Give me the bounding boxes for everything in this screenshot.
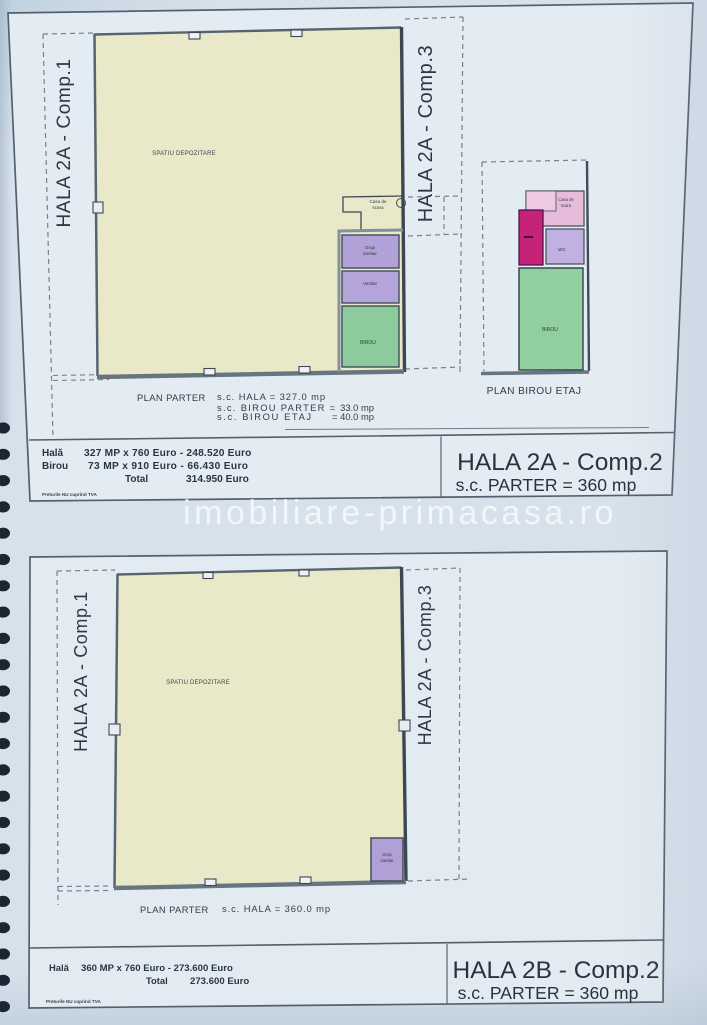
svg-text:73 MP x 910 Euro - 66.430 Eur: 73 MP x 910 Euro - 66.430 Euro [88,461,248,472]
svg-text:314.950 Euro: 314.950 Euro [186,474,249,485]
svg-text:273.600 Euro: 273.600 Euro [190,976,249,987]
svg-text:Birou: Birou [42,461,68,472]
svg-text:HALA 2A - Comp.1: HALA 2A - Comp.1 [71,591,91,752]
svg-text:327 MP x 760 Euro - 248.520 Eu: 327 MP x 760 Euro - 248.520 Euro [84,448,252,459]
svg-text:Total: Total [125,474,148,485]
svg-text:360 MP x 760 Euro - 273.600 Eu: 360 MP x 760 Euro - 273.600 Euro [81,963,233,974]
svg-text:Hală: Hală [42,448,64,459]
svg-text:SPATIU DEPOZITARE: SPATIU DEPOZITARE [166,680,230,686]
svg-text:=: = [332,411,338,422]
svg-text:PLAN PARTER: PLAN PARTER [140,904,209,915]
svg-text:s.c. HALA = 360.0 mp: s.c. HALA = 360.0 mp [222,903,331,914]
svg-text:PLAN PARTER: PLAN PARTER [137,392,206,403]
svg-text:s.c. BIROU ETAJ: s.c. BIROU ETAJ [217,411,313,422]
svg-text:Total: Total [146,975,168,986]
svg-text:Hală: Hală [49,962,70,973]
svg-text:imobiliare-primacasa.ro: imobiliare-primacasa.ro [183,494,617,532]
svg-text:HALA 2A - Comp.1: HALA 2A - Comp.1 [54,58,75,227]
svg-text:Preturile NU cuprind TVA: Preturile NU cuprind TVA [46,999,101,1004]
svg-text:s.c. HALA = 327.0 mp: s.c. HALA = 327.0 mp [217,391,326,402]
svg-text:SPATIU DEPOZITARE: SPATIU DEPOZITARE [152,151,216,157]
svg-text:Preturile NU cuprind TVA: Preturile NU cuprind TVA [42,492,97,497]
